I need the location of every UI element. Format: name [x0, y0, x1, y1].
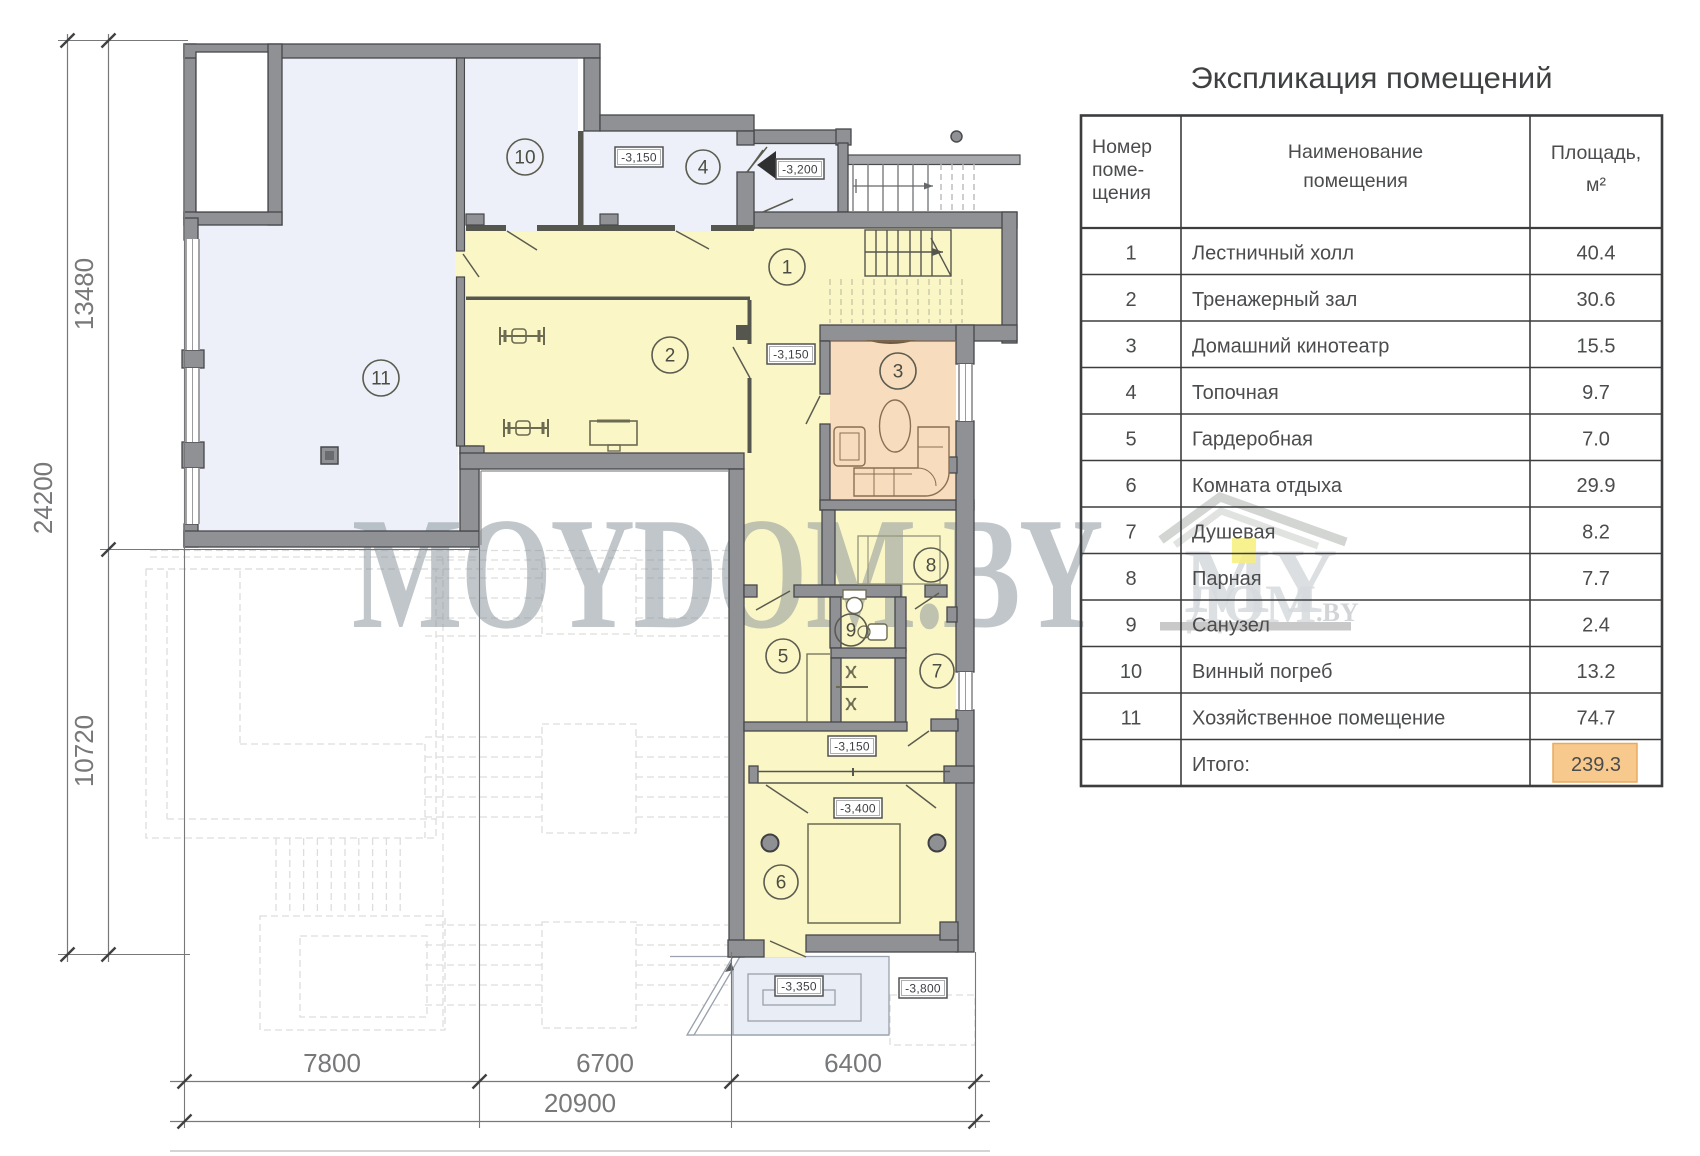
svg-text:м²: м²	[1586, 174, 1606, 196]
svg-text:13.2: 13.2	[1577, 661, 1616, 683]
svg-text:15.5: 15.5	[1577, 336, 1616, 358]
svg-text:4: 4	[698, 158, 709, 179]
svg-text:7.7: 7.7	[1582, 568, 1610, 590]
svg-text:7: 7	[932, 662, 943, 683]
svg-text:1: 1	[782, 258, 793, 279]
svg-text:Санузел: Санузел	[1192, 615, 1270, 637]
svg-text:щения: щения	[1092, 182, 1151, 204]
svg-text:Винный погреб: Винный погреб	[1192, 661, 1332, 683]
svg-text:8.2: 8.2	[1582, 522, 1610, 544]
svg-text:7: 7	[1125, 522, 1136, 544]
svg-text:20900: 20900	[544, 1088, 616, 1118]
svg-text:4: 4	[1125, 382, 1136, 404]
svg-text:Итого:: Итого:	[1192, 754, 1250, 776]
svg-text:6700: 6700	[576, 1048, 634, 1078]
svg-text:3: 3	[893, 362, 904, 383]
svg-text:помещения: помещения	[1303, 170, 1408, 192]
svg-text:2.4: 2.4	[1582, 615, 1610, 637]
svg-text:30.6: 30.6	[1577, 289, 1616, 311]
svg-text:Парная: Парная	[1192, 568, 1262, 590]
svg-text:6: 6	[1125, 475, 1136, 497]
svg-text:Гардеробная: Гардеробная	[1192, 429, 1313, 451]
svg-text:Комната отдыха: Комната отдыха	[1192, 475, 1343, 497]
svg-text:8: 8	[1125, 568, 1136, 590]
svg-text:7.0: 7.0	[1582, 429, 1610, 451]
svg-text:Душевая: Душевая	[1192, 522, 1276, 544]
svg-text:11: 11	[371, 369, 391, 390]
svg-text:1: 1	[1125, 243, 1136, 265]
svg-text:-3,350: -3,350	[781, 980, 817, 994]
svg-text:40.4: 40.4	[1577, 243, 1616, 265]
svg-text:Хозяйственное помещение: Хозяйственное помещение	[1192, 708, 1445, 730]
svg-text:Домашний кинотеатр: Домашний кинотеатр	[1192, 336, 1389, 358]
svg-text:8: 8	[926, 556, 937, 577]
svg-text:Наименование: Наименование	[1288, 141, 1423, 163]
svg-text:74.7: 74.7	[1577, 708, 1616, 730]
svg-text:Номер: Номер	[1092, 136, 1152, 158]
svg-text:10: 10	[1120, 661, 1142, 683]
svg-text:24200: 24200	[28, 462, 58, 534]
svg-text:-3,150: -3,150	[834, 740, 870, 754]
svg-text:Топочная: Топочная	[1192, 382, 1279, 404]
svg-text:10: 10	[514, 148, 535, 169]
svg-text:поме-: поме-	[1092, 159, 1144, 181]
svg-text:10720: 10720	[69, 715, 99, 787]
svg-text:-3,400: -3,400	[840, 802, 876, 816]
svg-text:Экспликация помещений: Экспликация помещений	[1191, 62, 1553, 95]
svg-text:6400: 6400	[824, 1048, 882, 1078]
svg-text:7800: 7800	[303, 1048, 361, 1078]
svg-text:2: 2	[1125, 289, 1136, 311]
svg-text:Площадь,: Площадь,	[1551, 142, 1641, 164]
svg-text:9: 9	[1125, 615, 1136, 637]
svg-text:Лестничный холл: Лестничный холл	[1192, 243, 1354, 265]
svg-text:5: 5	[778, 647, 789, 668]
svg-text:-3,150: -3,150	[773, 348, 809, 362]
svg-text:29.9: 29.9	[1577, 475, 1616, 497]
svg-text:239.3: 239.3	[1571, 754, 1621, 776]
svg-text:-3,150: -3,150	[621, 151, 657, 165]
svg-text:5: 5	[1125, 429, 1136, 451]
svg-text:-3,800: -3,800	[905, 982, 941, 996]
svg-text:9.7: 9.7	[1582, 382, 1610, 404]
svg-text:-3,200: -3,200	[782, 163, 818, 177]
svg-text:2: 2	[665, 346, 676, 367]
svg-text:Тренажерный зал: Тренажерный зал	[1192, 289, 1357, 311]
svg-text:13480: 13480	[69, 258, 99, 330]
svg-text:11: 11	[1121, 708, 1142, 730]
svg-text:6: 6	[776, 873, 787, 894]
svg-text:3: 3	[1125, 336, 1136, 358]
svg-text:9: 9	[846, 621, 857, 642]
